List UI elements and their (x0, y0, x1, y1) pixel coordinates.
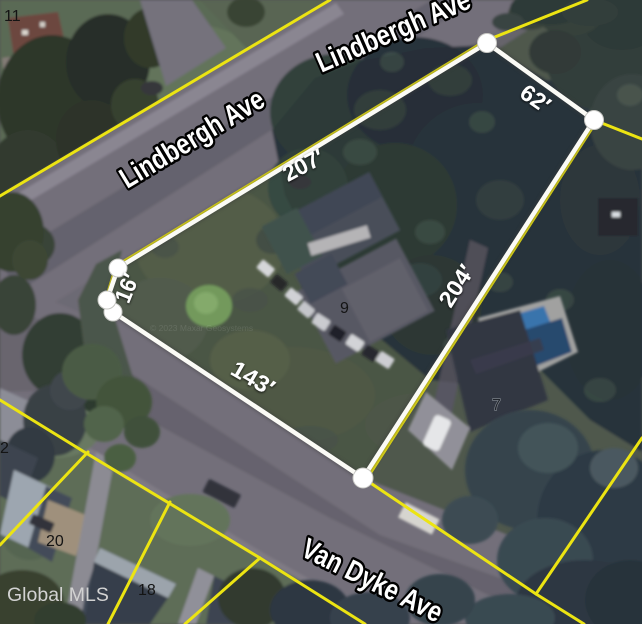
svg-text:9: 9 (340, 300, 349, 317)
svg-text:11: 11 (4, 8, 21, 25)
svg-text:18: 18 (138, 582, 156, 599)
svg-text:20: 20 (46, 533, 64, 550)
svg-text:© 2023 Maxar Geosystems: © 2023 Maxar Geosystems (150, 323, 253, 333)
svg-text:Global MLS: Global MLS (7, 584, 109, 606)
svg-text:7: 7 (492, 397, 501, 414)
svg-text:2: 2 (0, 440, 9, 457)
